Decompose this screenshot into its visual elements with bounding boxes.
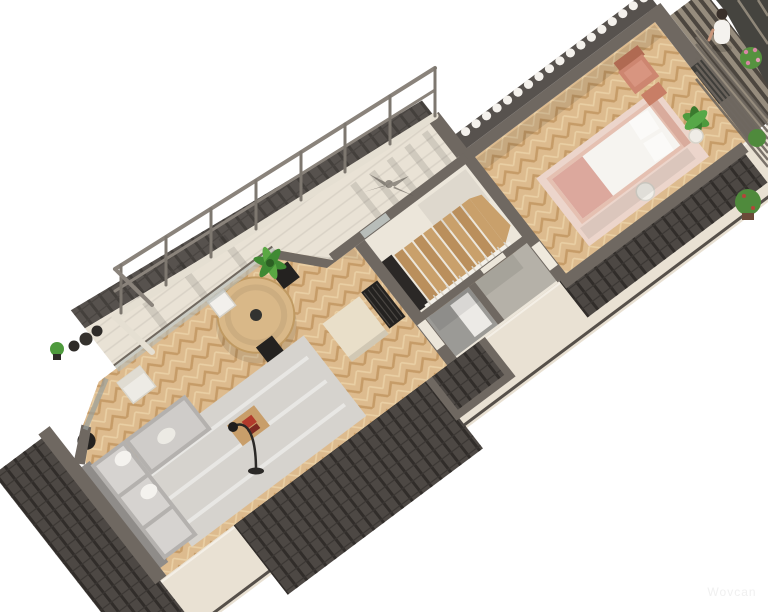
flower-plant — [740, 47, 762, 69]
balcony-plant — [50, 342, 64, 356]
floorplan-stage: Wovcan — [0, 0, 768, 612]
table-centerpiece — [250, 309, 262, 321]
plant-pot — [689, 129, 703, 143]
bistro-set — [50, 326, 103, 361]
floorplan-render: Wovcan — [0, 0, 768, 612]
watermark: Wovcan — [707, 585, 756, 599]
building — [0, 0, 768, 612]
